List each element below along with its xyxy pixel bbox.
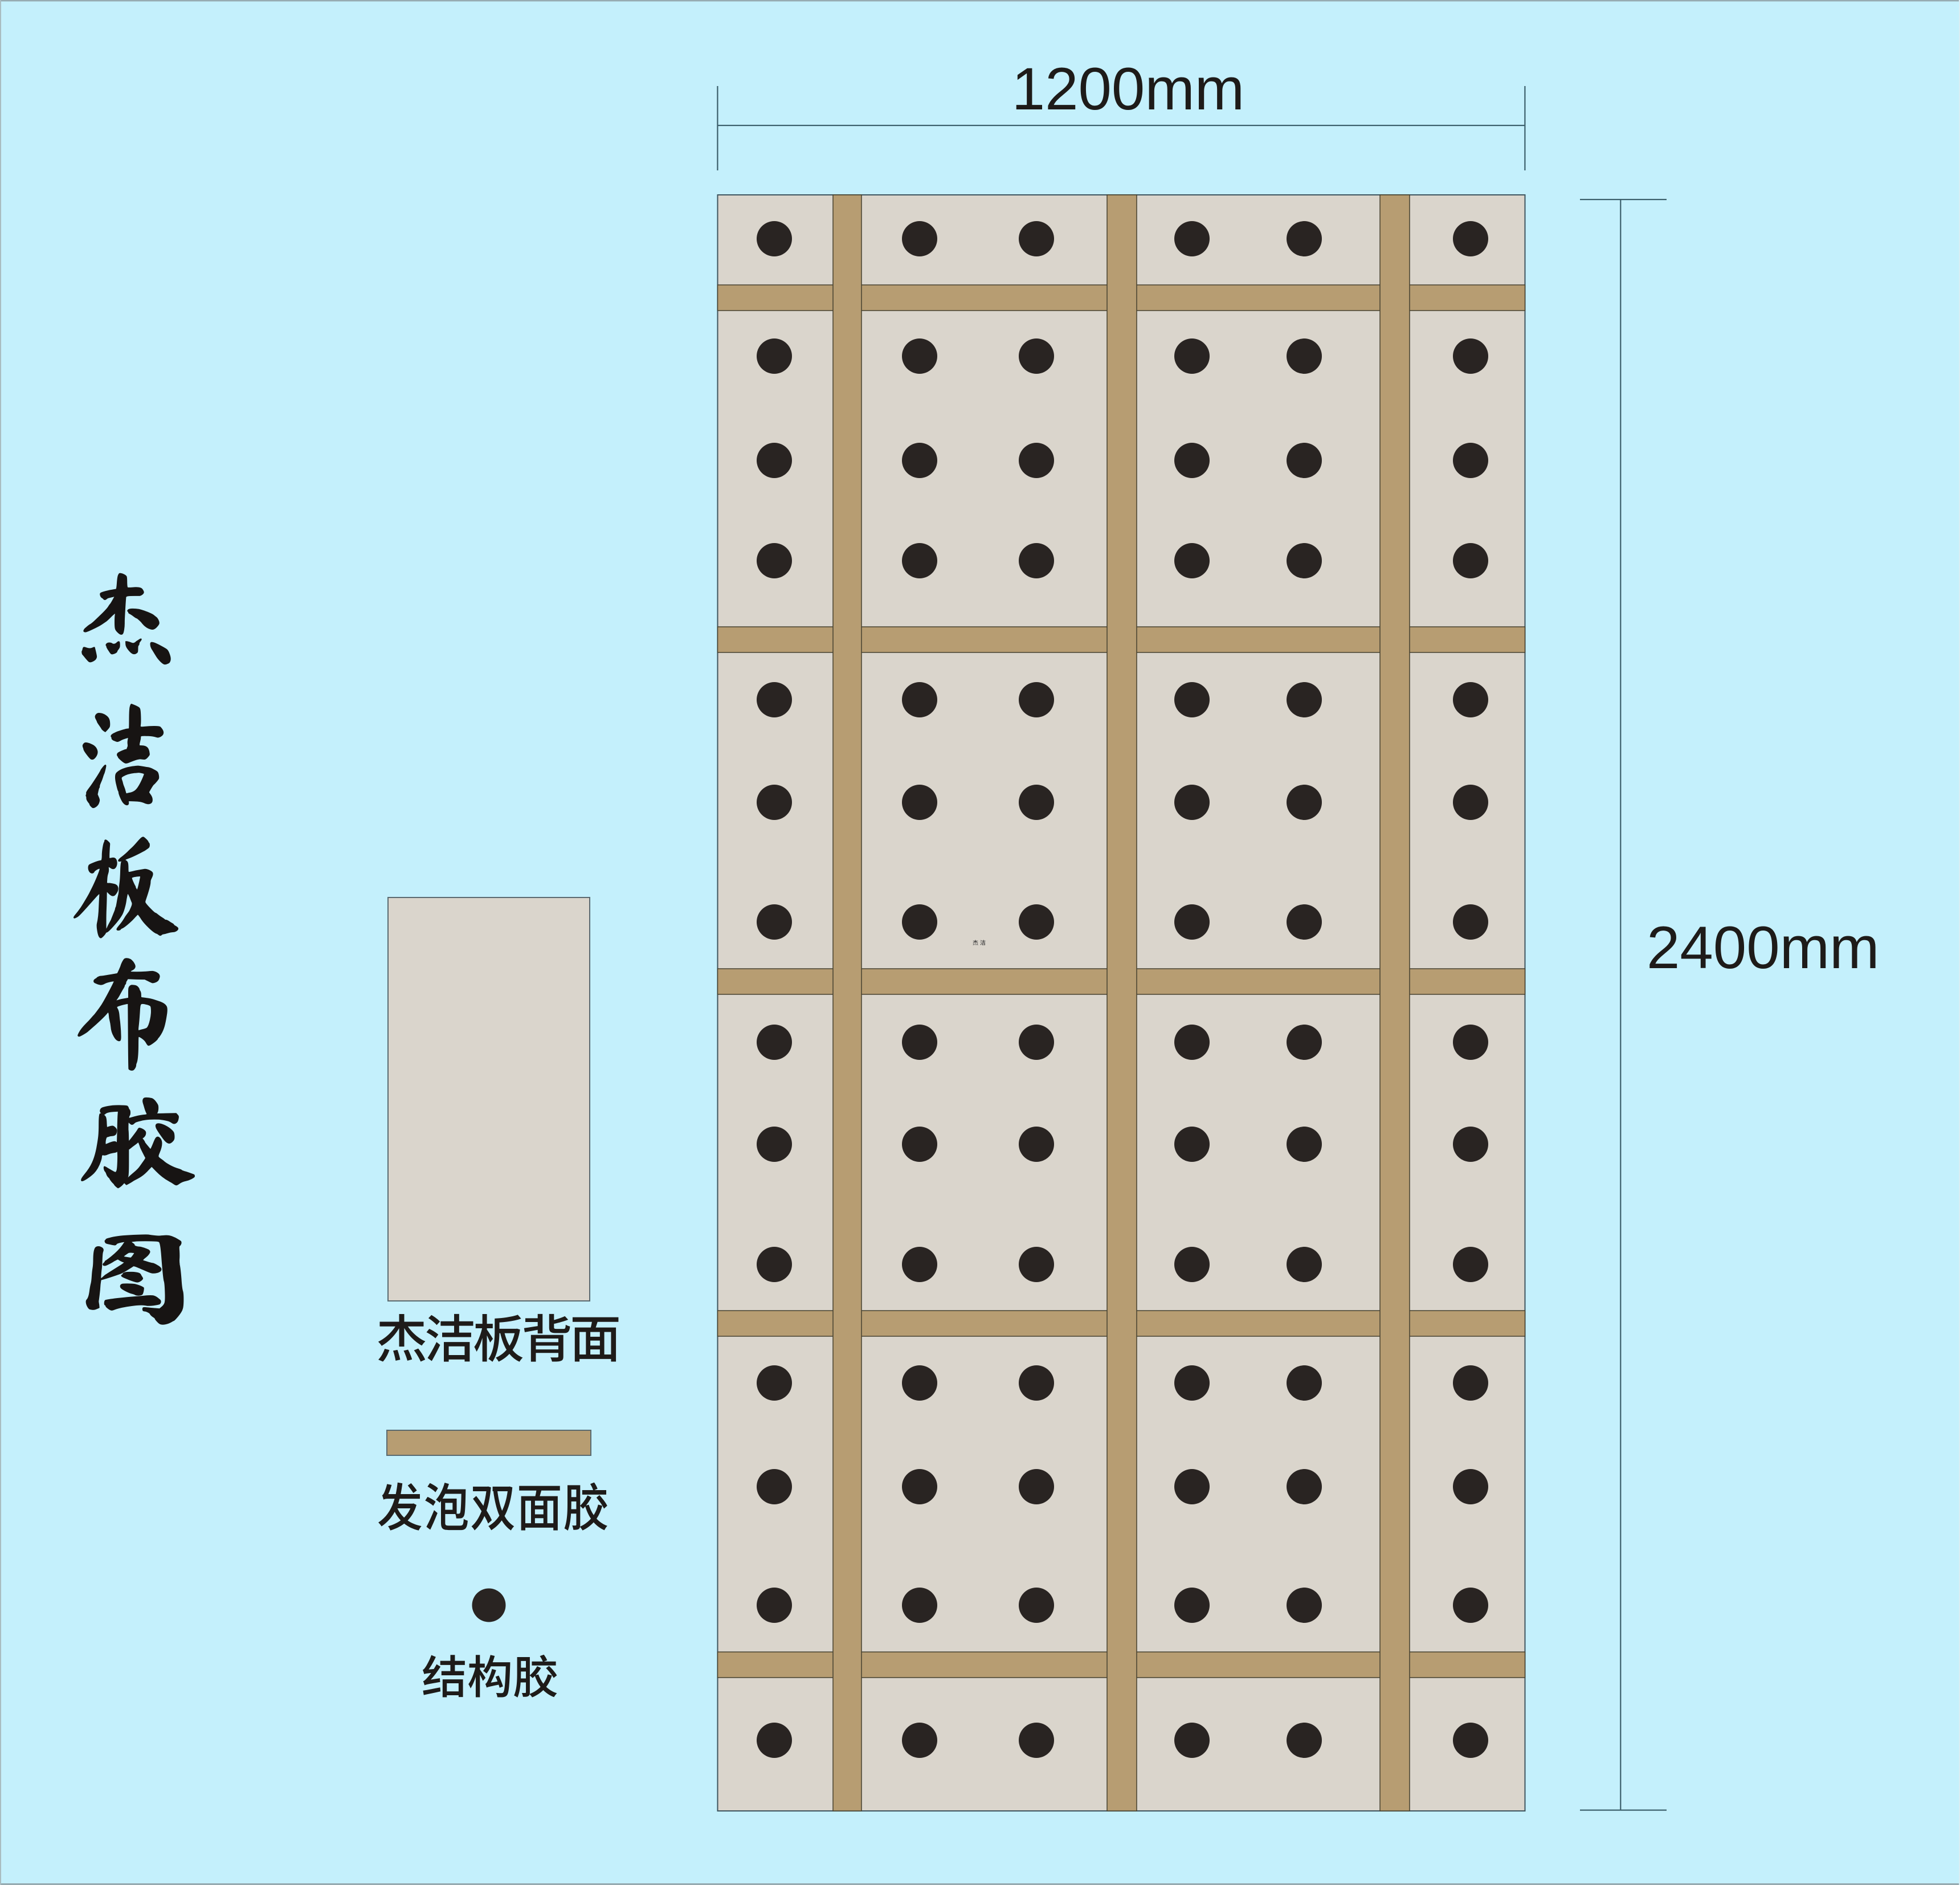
svg-text:1200mm: 1200mm: [1012, 56, 1245, 123]
svg-text:2400mm: 2400mm: [1647, 915, 1880, 981]
